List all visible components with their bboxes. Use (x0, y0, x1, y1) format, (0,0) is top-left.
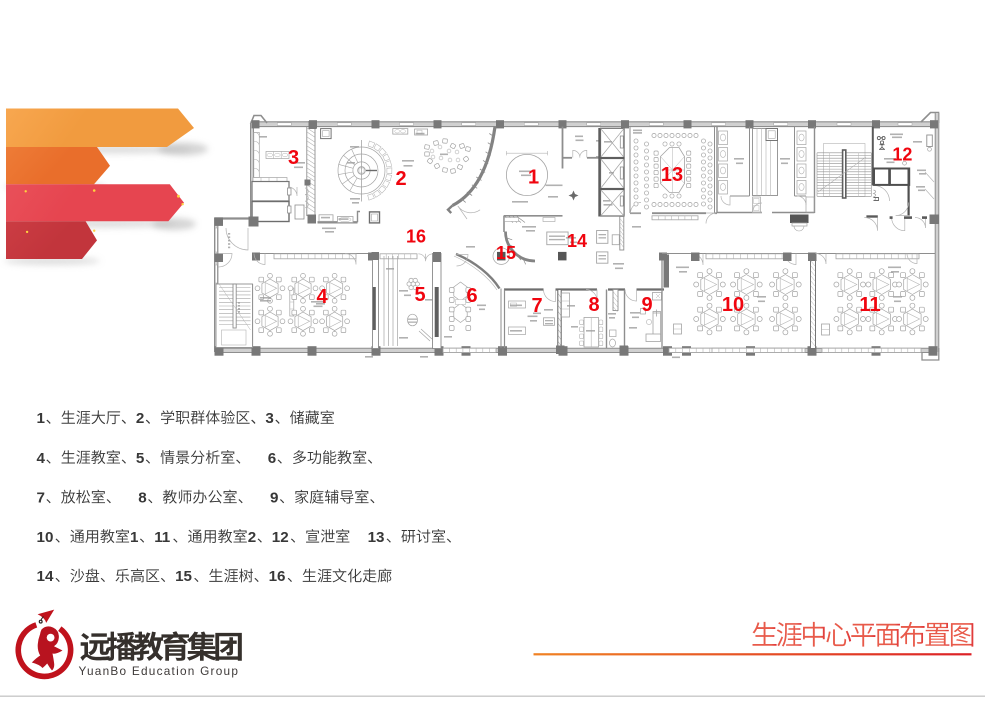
svg-text:16: 16 (269, 568, 286, 585)
svg-text:1: 1 (130, 529, 139, 546)
svg-text:14: 14 (37, 568, 54, 585)
svg-text:10: 10 (37, 529, 54, 546)
svg-text:11: 11 (154, 529, 171, 546)
svg-text:7: 7 (531, 295, 542, 317)
svg-text:3: 3 (288, 147, 299, 169)
svg-text:5: 5 (414, 284, 425, 306)
svg-text:9: 9 (641, 294, 652, 316)
svg-text:12: 12 (272, 529, 289, 546)
svg-text:1: 1 (37, 410, 46, 427)
svg-text:6: 6 (268, 450, 276, 467)
svg-text:5: 5 (136, 450, 145, 467)
svg-text:7: 7 (37, 489, 45, 506)
svg-text:8: 8 (588, 294, 599, 316)
svg-text:4: 4 (316, 286, 328, 308)
svg-text:YuanBo Education Group: YuanBo Education Group (79, 664, 240, 678)
svg-text:15: 15 (175, 568, 192, 585)
svg-text:4: 4 (37, 450, 46, 467)
svg-text:2: 2 (395, 168, 406, 190)
svg-text:13: 13 (368, 529, 385, 546)
svg-text:10: 10 (722, 294, 744, 316)
svg-text:9: 9 (270, 489, 278, 506)
svg-text:11: 11 (859, 294, 880, 316)
svg-text:14: 14 (567, 231, 587, 251)
svg-text:12: 12 (892, 145, 912, 165)
svg-text:2: 2 (136, 410, 144, 427)
svg-text:6: 6 (466, 285, 477, 307)
svg-text:15: 15 (496, 243, 516, 263)
svg-text:1: 1 (528, 167, 539, 189)
svg-text:2: 2 (248, 529, 256, 546)
svg-text:8: 8 (138, 489, 146, 506)
svg-text:13: 13 (661, 164, 683, 186)
svg-text:16: 16 (406, 227, 426, 247)
svg-text:3: 3 (265, 410, 273, 427)
